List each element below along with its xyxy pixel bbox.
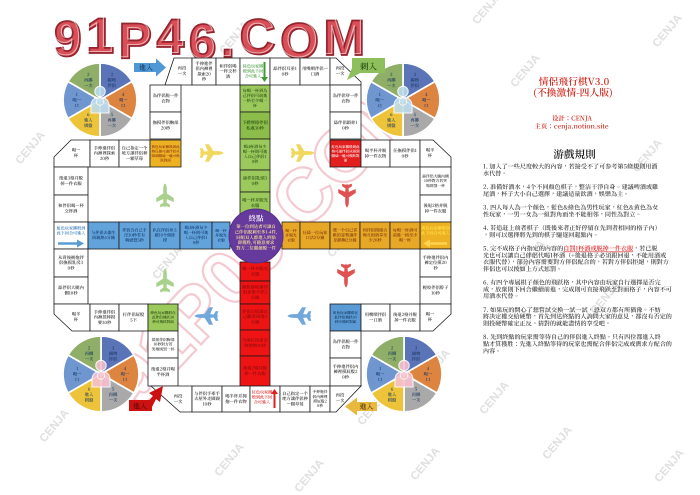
svg-text:伴侶為自己手淫30秒若有嗨感覺5秒: 伴侶為自己手淫30秒若有嗨感覺5秒 bbox=[122, 228, 147, 244]
svg-text:CENJA: CENJA bbox=[293, 457, 327, 495]
svg-text:8. 先到終點的玩家需等待自己的伴侶進入終點。只有四位都進入: 8. 先到終點的玩家需等待自己的伴侶進入終點。只有四位都進入終點才算獲胜：先進入… bbox=[483, 332, 672, 355]
svg-text:CENJA: CENJA bbox=[14, 129, 48, 167]
svg-text:刺入: 刺入 bbox=[360, 61, 378, 73]
svg-text:CENJA: CENJA bbox=[653, 447, 687, 485]
svg-text:4. 若追赶上前者棋子（既後來者正好停留在先到者相同的格子內: 4. 若追赶上前者棋子（既後來者正好停留在先到者相同的格子內），則可以選擇將先到… bbox=[483, 223, 661, 239]
svg-text:選一个自己喜歡的姿勢讓伴侶摸胸2分鐘: 選一个自己喜歡的姿勢讓伴侶摸胸2分鐘 bbox=[333, 228, 358, 244]
svg-text:進入: 進入 bbox=[360, 402, 374, 412]
svg-text:2. 准備好酒水，4个不同顏色棋子，整洁干淨自身。建議啤酒或: 2. 准備好酒水，4个不同顏色棋子，整洁干淨自身。建議啤酒或雞尾酒，杯子大小自己… bbox=[483, 182, 658, 198]
svg-text:紅色玩家擲骰到此下回合可進入: 紅色玩家擲骰到此下回合可進入 bbox=[252, 390, 273, 406]
svg-text:(不換激情-四人版): (不換激情-四人版) bbox=[533, 85, 613, 99]
svg-text:後退2格并脱掉一件衣服: 後退2格并脱掉一件衣服 bbox=[424, 203, 449, 214]
svg-text:進入: 進入 bbox=[139, 63, 153, 73]
svg-text:後退2格并脱掉一件衣服: 後退2格并脱掉一件衣服 bbox=[393, 312, 418, 323]
svg-text:狂舔一位玩家口活2分鐘: 狂舔一位玩家口活2分鐘 bbox=[303, 230, 328, 241]
svg-text:CENJA: CENJA bbox=[213, 441, 247, 479]
svg-text:CENJA: CENJA bbox=[478, 379, 512, 417]
svg-text:主页：cenja.notion.site: 主页：cenja.notion.site bbox=[534, 121, 608, 130]
svg-text:与兩位玩家舌吻熱吻10秒: 与兩位玩家舌吻熱吻10秒 bbox=[242, 338, 268, 349]
svg-text:CENJA: CENJA bbox=[409, 445, 443, 483]
svg-text:5. 完不成格子內指定的內容的自罰1杯酒或脱掉一件衣服，若已: 5. 完不成格子內指定的內容的自罰1杯酒或脱掉一件衣服，若已脱光也可以讓自己伴侶… bbox=[483, 244, 669, 273]
svg-text:黄色玩家擲骰到此下回合可進入: 黄色玩家擲骰到此下回合可進入 bbox=[421, 226, 450, 237]
svg-text:藍色玩家擲骰到此下回合可進入: 藍色玩家擲骰到此下回合可進入 bbox=[57, 226, 86, 237]
svg-text:CENJA: CENJA bbox=[471, 0, 505, 27]
svg-text:第一位到达者可讓自己伴侶脱剩至多1-4件,同組双人都進入終點: 第一位到达者可讓自己伴侶脱剩至多1-4件,同組双人都進入終點即獲胜,可隨意要求對… bbox=[235, 224, 278, 252]
svg-text:綠色玩家擲骰在此伴侶飛跃30秒可飛跃對面: 綠色玩家擲骰在此伴侶飛跃30秒可飛跃對面 bbox=[150, 310, 176, 325]
svg-text:後退3格并脱掉一件衣服: 後退3格并脱掉一件衣服 bbox=[59, 176, 84, 187]
svg-text:再投一次: 再投一次 bbox=[336, 66, 345, 77]
svg-text:CENJA: CENJA bbox=[38, 407, 72, 445]
svg-text:3. 四人每人為一个顏色，藍色&綠色為男性玩家，紅色&黄色為: 3. 四人每人為一个顏色，藍色&綠色為男性玩家，紅色&黄色為女性玩家，一男一女為… bbox=[483, 203, 658, 219]
svg-text:CENJA: CENJA bbox=[651, 12, 685, 50]
svg-text:CENJA: CENJA bbox=[541, 424, 575, 462]
svg-text:揉搓伴侶胸部10秒對方若笑場則罰一杯: 揉搓伴侶胸部10秒對方若笑場則罰一杯 bbox=[152, 337, 175, 352]
svg-text:与伴侶去衛生间親熱4分鐘: 与伴侶去衛生间親熱4分鐘 bbox=[91, 230, 116, 241]
svg-text:終點: 終點 bbox=[249, 213, 264, 224]
svg-text:7. 如果玩的開心了想嘗試交換一試一試，恐双方都有所猶豫。不: 7. 如果玩的開心了想嘗試交換一試一試，恐双方都有所猶豫。不妨將决定權交給硬幣，… bbox=[483, 305, 672, 328]
svg-text:後退2格并脱掉一件衣服: 後退2格并脱掉一件衣服 bbox=[243, 366, 268, 377]
svg-text:喝半杯并拥抱一件衣物: 喝半杯并拥抱一件衣物 bbox=[225, 394, 247, 405]
svg-text:再投一次: 再投一次 bbox=[174, 394, 183, 405]
svg-text:舔伴侶大腿內側10秒對方若笑場則罰一杯: 舔伴侶大腿內側10秒對方若笑場則罰一杯 bbox=[422, 174, 449, 189]
svg-text:喝半杯并脱掉一件衣物: 喝半杯并脱掉一件衣物 bbox=[365, 148, 387, 159]
svg-text:再投一次: 再投一次 bbox=[178, 66, 187, 77]
svg-text:1. 加入了一些尺度較大的內容，若接受不了可参考第5條規則用: 1. 加入了一些尺度較大的內容，若接受不了可参考第5條規則用酒水代替。 bbox=[483, 162, 657, 178]
svg-text:再投一次: 再投一次 bbox=[336, 393, 345, 404]
svg-text:游戲規則: 游戲規則 bbox=[553, 147, 596, 162]
svg-text:6. 有四个專属棋子顏色的飛跃格，其中內容由玩家自行選擇是否: 6. 有四个專属棋子顏色的飛跃格，其中內容由玩家自行選擇是否完成，放棄則下回合繼… bbox=[483, 278, 672, 301]
svg-text:藍色玩家擲骰在此伴侶飛跃30秒可飛跃對面: 藍色玩家擲骰在此伴侶飛跃30秒可飛跃對面 bbox=[333, 310, 359, 325]
svg-text:進入: 進入 bbox=[133, 402, 147, 412]
svg-text:綠色玩家擲骰到此下回合可進入: 綠色玩家擲骰到此下回合可進入 bbox=[243, 64, 264, 80]
